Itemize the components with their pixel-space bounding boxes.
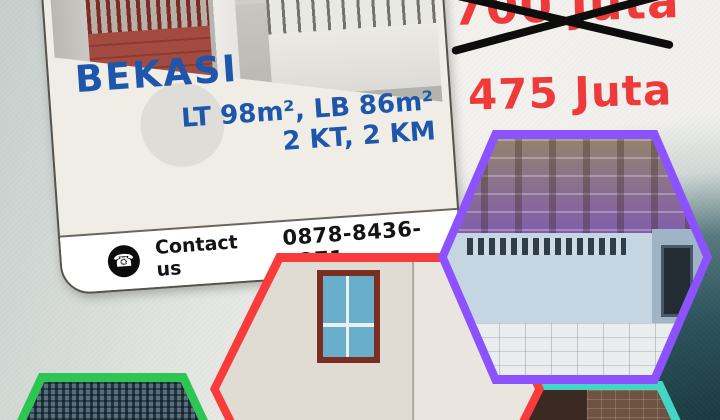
ventilation-blocks — [467, 238, 626, 255]
roof-ornament-photo — [0, 382, 226, 420]
listing-card: BEKASI LT 98m², LB 86m² 2 KT, 2 KM ☎ Con… — [39, 0, 463, 296]
lattice-screen — [0, 382, 226, 420]
flyer-background: BEKASI LT 98m², LB 86m² 2 KT, 2 KM ☎ Con… — [0, 0, 720, 420]
contact-label: Contact us — [154, 230, 259, 281]
interior-photo-carport — [447, 139, 703, 375]
property-specs: LT 98m², LB 86m² 2 KT, 2 KM — [180, 87, 436, 164]
dark-window — [661, 245, 693, 317]
phone-icon: ☎ — [107, 244, 141, 278]
new-price: 475 Juta — [467, 65, 672, 119]
wood-beam-ceiling — [447, 139, 703, 233]
window — [317, 270, 380, 363]
brick-wall — [587, 390, 707, 420]
hexagon-photo-purple — [438, 130, 712, 384]
hexagon-photo-green — [0, 373, 235, 420]
